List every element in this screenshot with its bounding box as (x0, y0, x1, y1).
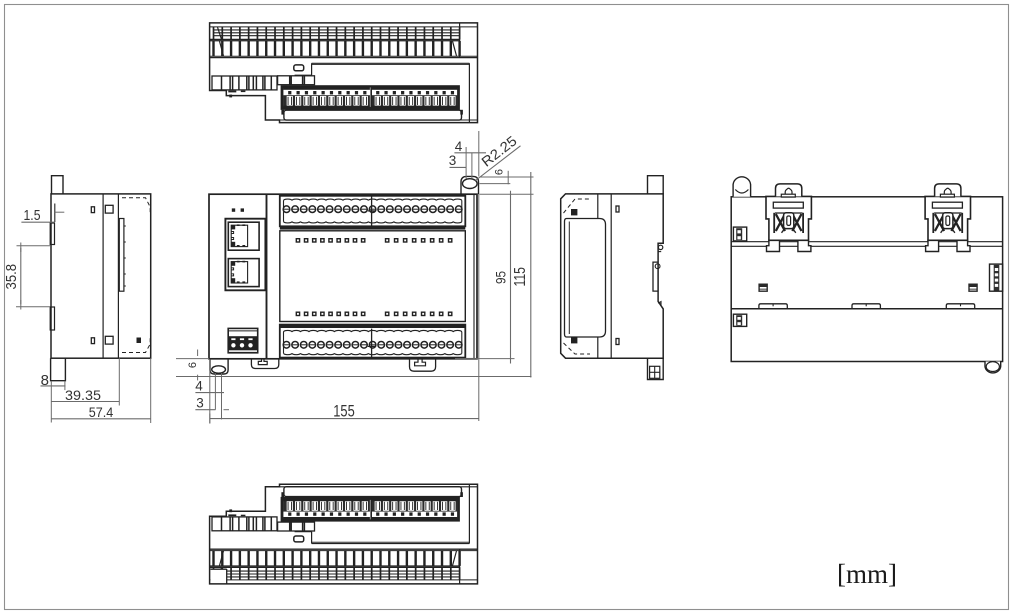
svg-text:4: 4 (195, 379, 203, 394)
svg-text:39.35: 39.35 (65, 388, 101, 403)
svg-text:[mm]: [mm] (837, 559, 897, 589)
svg-text:3: 3 (196, 396, 204, 411)
svg-text:6: 6 (187, 362, 199, 368)
svg-text:57.4: 57.4 (89, 405, 114, 420)
svg-text:3: 3 (449, 153, 457, 168)
svg-text:4: 4 (455, 139, 463, 154)
svg-text:95: 95 (493, 271, 509, 284)
svg-text:6: 6 (494, 169, 506, 175)
svg-text:35.8: 35.8 (3, 264, 20, 290)
svg-text:155: 155 (333, 401, 355, 420)
svg-text:8: 8 (41, 372, 49, 389)
svg-text:115: 115 (512, 267, 529, 287)
svg-text:1.5: 1.5 (24, 208, 41, 224)
